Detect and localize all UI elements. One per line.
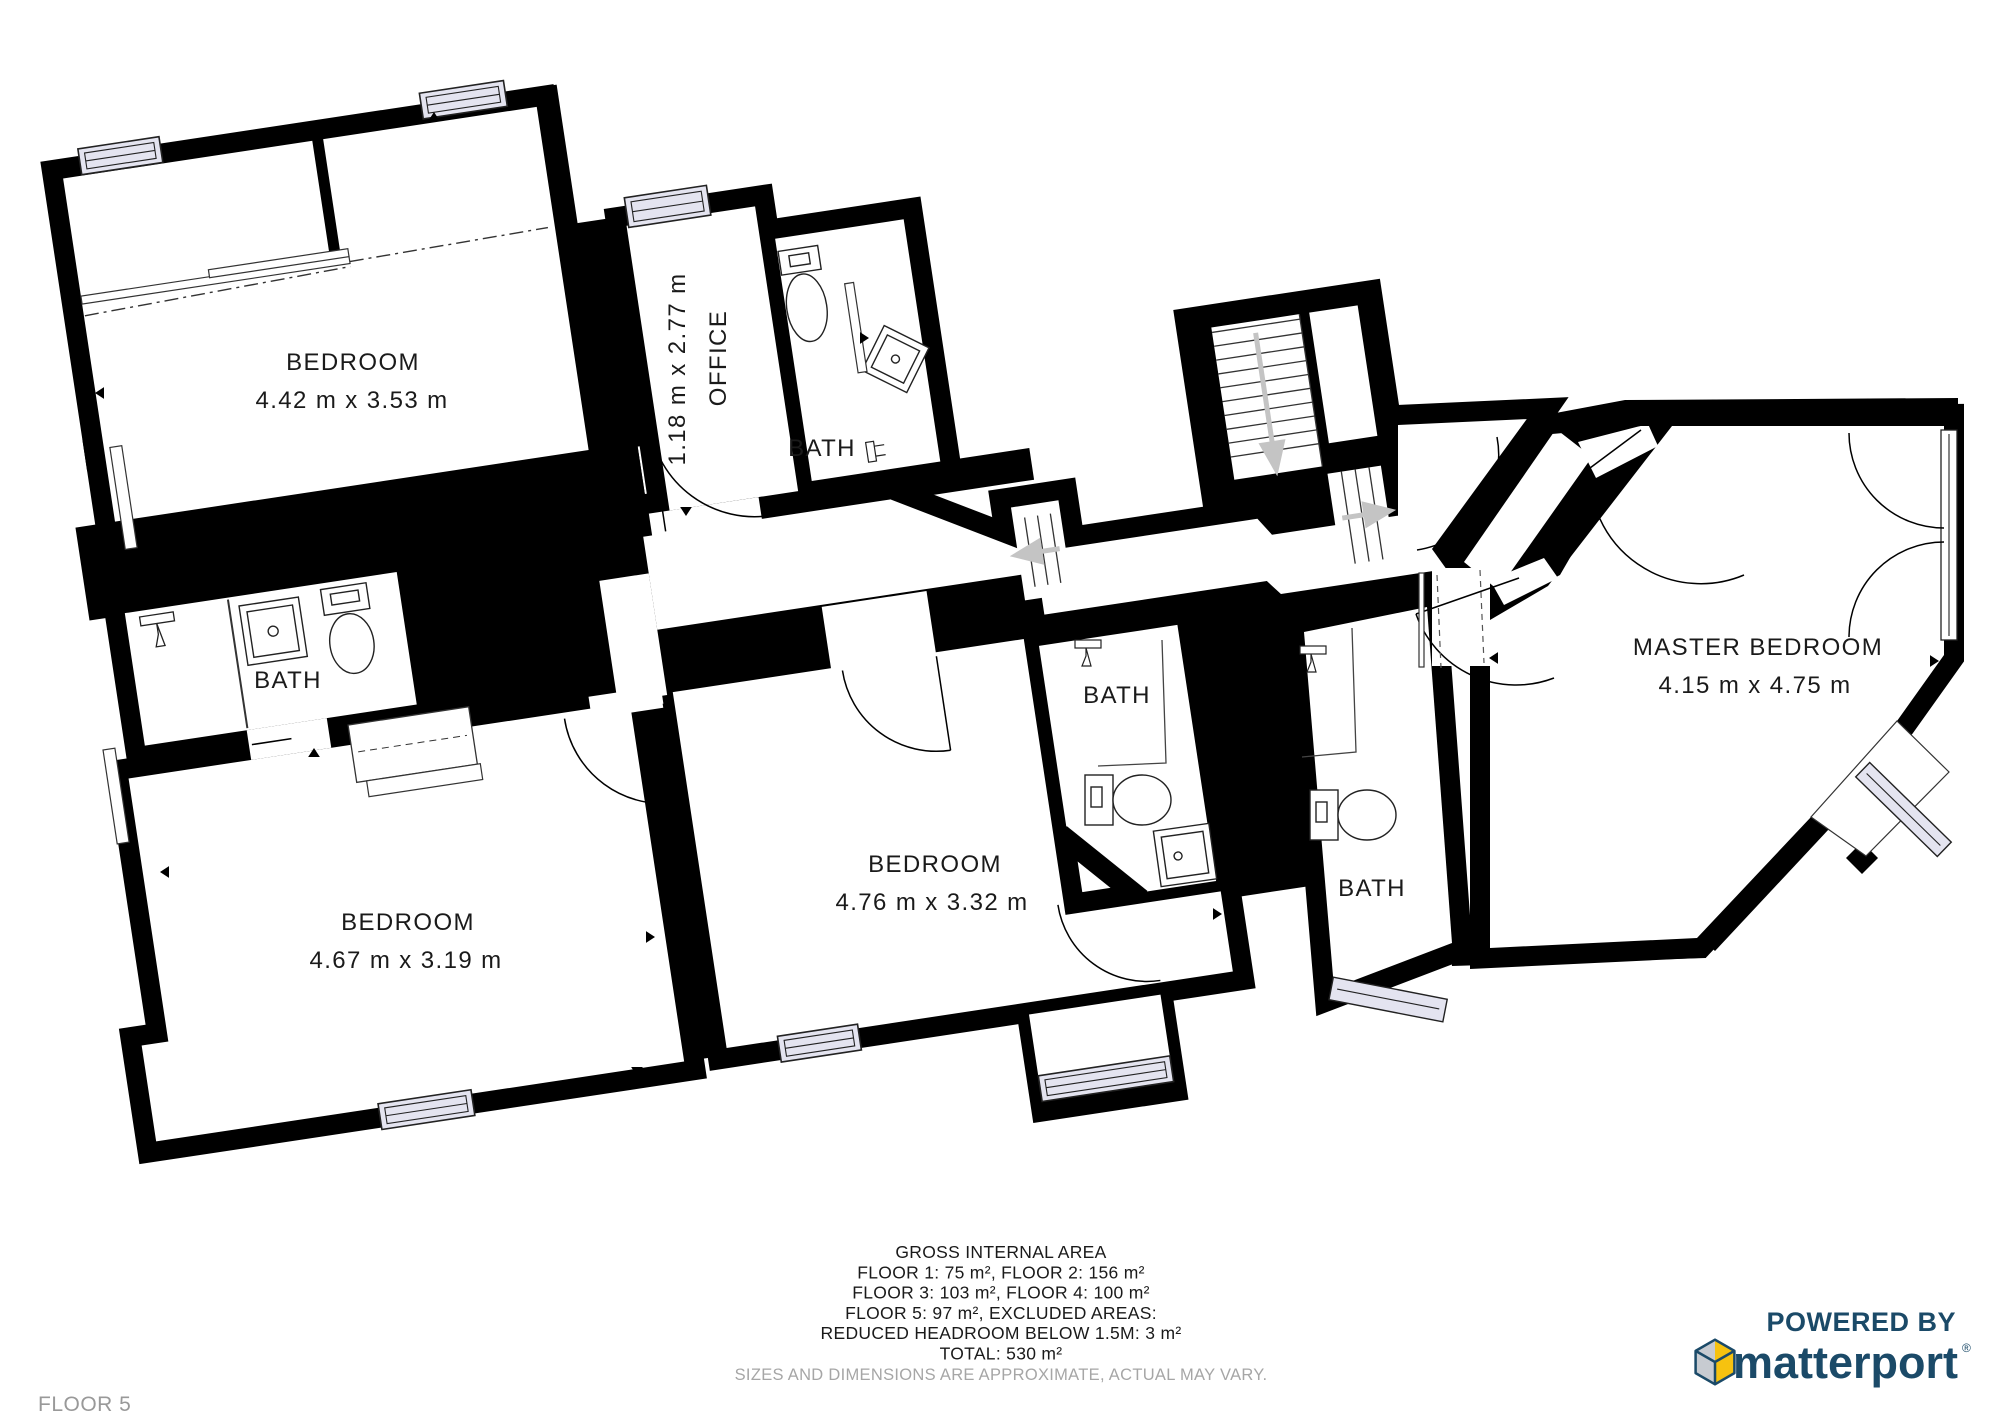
- svg-text:FLOOR 5: FLOOR 5: [38, 1393, 131, 1414]
- svg-text:BATH: BATH: [254, 667, 322, 694]
- svg-text:REDUCED HEADROOM BELOW 1.5M: 3: REDUCED HEADROOM BELOW 1.5M: 3 m²: [821, 1323, 1182, 1343]
- svg-text:MASTER BEDROOM: MASTER BEDROOM: [1633, 634, 1883, 661]
- svg-text:GROSS INTERNAL AREA: GROSS INTERNAL AREA: [895, 1242, 1106, 1262]
- svg-text:BATH: BATH: [1083, 682, 1151, 709]
- svg-text:BEDROOM: BEDROOM: [868, 851, 1002, 878]
- svg-text:4.67 m x 3.19 m: 4.67 m x 3.19 m: [309, 947, 502, 974]
- svg-text:®: ®: [1962, 1341, 1971, 1355]
- svg-text:4.76 m x 3.32 m: 4.76 m x 3.32 m: [835, 889, 1028, 916]
- svg-text:POWERED BY: POWERED BY: [1766, 1307, 1956, 1337]
- svg-text:1.18 m x 2.77 m: 1.18 m x 2.77 m: [664, 272, 691, 465]
- svg-text:matterport: matterport: [1733, 1337, 1958, 1388]
- svg-text:4.15 m x 4.75 m: 4.15 m x 4.75 m: [1658, 672, 1851, 699]
- svg-text:FLOOR 5: 97 m², EXCLUDED AREAS: FLOOR 5: 97 m², EXCLUDED AREAS:: [845, 1303, 1157, 1323]
- svg-text:FLOOR 3: 103 m², FLOOR 4: 100: FLOOR 3: 103 m², FLOOR 4: 100 m²: [852, 1283, 1149, 1303]
- svg-text:BEDROOM: BEDROOM: [341, 909, 475, 936]
- svg-text:BATH: BATH: [1338, 875, 1406, 902]
- svg-text:FLOOR 1: 75 m², FLOOR 2: 156 m: FLOOR 1: 75 m², FLOOR 2: 156 m²: [857, 1262, 1144, 1282]
- svg-text:BATH: BATH: [788, 435, 856, 462]
- svg-text:BEDROOM: BEDROOM: [286, 349, 420, 376]
- svg-text:TOTAL: 530 m²: TOTAL: 530 m²: [940, 1344, 1063, 1364]
- svg-text:OFFICE: OFFICE: [705, 310, 732, 406]
- svg-text:SIZES AND DIMENSIONS ARE APPRO: SIZES AND DIMENSIONS ARE APPROXIMATE, AC…: [735, 1366, 1268, 1384]
- svg-text:4.42 m x 3.53 m: 4.42 m x 3.53 m: [255, 387, 448, 414]
